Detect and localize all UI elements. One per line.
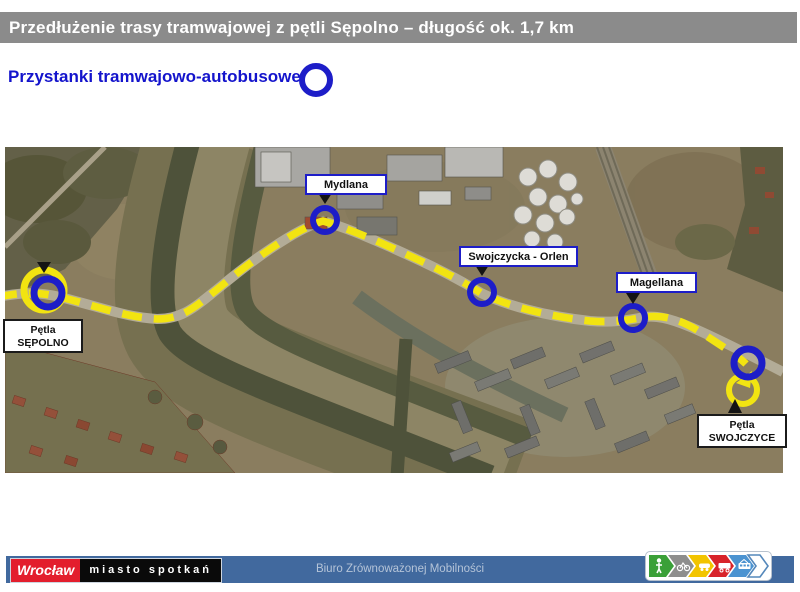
map-artwork: [5, 147, 783, 473]
footer-bar: Wrocław miasto spotkań Biuro Zrównoważon…: [6, 556, 794, 583]
office-name: Biuro Zrównoważonej Mobilności: [316, 556, 484, 583]
stop-label-text: Mydlana: [324, 179, 368, 191]
wroclaw-city-logo: Wrocław miasto spotkań: [10, 558, 222, 583]
loop-label-line2: SĘPOLNO: [17, 337, 68, 349]
stop-label-magellana: Magellana: [616, 272, 697, 293]
loop-label-line2: SWOJCZYCE: [709, 432, 776, 444]
mobility-office-logo: [645, 551, 772, 581]
stop-label-text: Magellana: [630, 277, 683, 289]
transport-modes-icon: [648, 554, 769, 578]
legend-label: Przystanki tramwajowo-autobusowe: [8, 67, 301, 87]
stop-ring-icon: [299, 63, 333, 97]
wroclaw-logo-tagline: miasto spotkań: [80, 559, 221, 582]
page-title: Przedłużenie trasy tramwajowej z pętli S…: [0, 12, 797, 43]
loop-label-swojczyce: Pętla SWOJCZYCE: [697, 414, 787, 448]
header-bar: Przedłużenie trasy tramwajowej z pętli S…: [0, 12, 797, 43]
loop-label-sepolno: Pętla SĘPOLNO: [3, 319, 83, 353]
loop-label-line1: Pętla: [30, 324, 55, 336]
loop-label-line1: Pętla: [729, 419, 754, 431]
stop-label-swojczycka-orlen: Swojczycka - Orlen: [459, 246, 578, 267]
pedestrian-icon: [649, 555, 674, 577]
wroclaw-logo-text: Wrocław: [11, 559, 80, 582]
slide: Przedłużenie trasy tramwajowej z pętli S…: [0, 0, 800, 592]
stop-label-mydlana: Mydlana: [305, 174, 387, 195]
stop-label-text: Swojczycka - Orlen: [468, 251, 568, 263]
aerial-map: [5, 147, 783, 473]
